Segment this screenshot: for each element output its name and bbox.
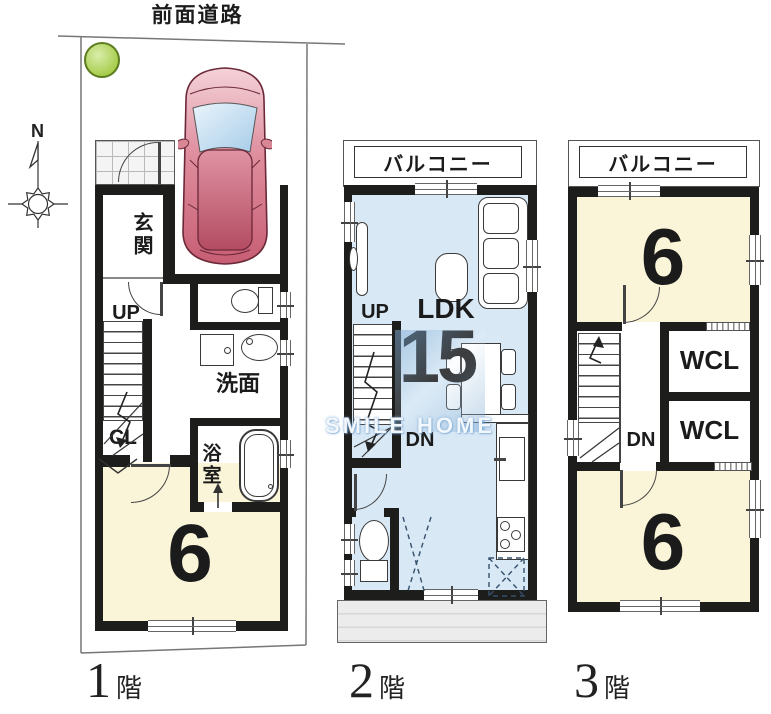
wall [163, 195, 175, 280]
toilet-tank-icon-2f [360, 560, 388, 582]
stair-edge-3f [619, 333, 621, 463]
hall-door-leaf [160, 282, 163, 316]
dn-label-3f: DN [622, 430, 660, 450]
wall [190, 280, 198, 330]
wall [95, 185, 175, 195]
closet-door-wcl-top [706, 322, 750, 331]
window [280, 440, 291, 468]
stairs-2f [353, 324, 393, 425]
sofa-cushion [483, 203, 519, 234]
window [280, 340, 291, 366]
sofa-cushion [483, 273, 519, 304]
wall [660, 331, 669, 466]
genkan-label: 玄関 [129, 206, 153, 264]
eave-canopy-2f [337, 600, 547, 643]
wall [344, 458, 401, 468]
window [526, 240, 538, 292]
window [598, 185, 660, 197]
senmen-label: 洗面 [210, 371, 266, 397]
wcl-bottom-label: WCL [669, 415, 750, 445]
tree-icon [84, 42, 120, 78]
window [749, 480, 761, 538]
closet-door-wcl-bottom [714, 462, 752, 471]
floor3-title: 3階 [574, 655, 630, 705]
balcony-label-box-2f: バルコニー [354, 146, 522, 178]
floor1-title: 1階 [86, 655, 142, 705]
cl-label: CL [102, 425, 144, 449]
stairs-3f [578, 333, 620, 423]
up-label-1f: UP [106, 303, 146, 323]
floor1-suffix: 階 [116, 676, 142, 702]
tv-icon [349, 247, 358, 271]
wall [170, 455, 198, 467]
floor1-number: 1 [86, 655, 111, 705]
balcony-label-box-3f: バルコニー [579, 146, 747, 178]
floor2-suffix: 階 [379, 676, 405, 702]
compass-n-label: N [31, 121, 44, 141]
room6-bottom-door-leaf [620, 470, 623, 508]
ldk-size-label: 15 [390, 322, 484, 392]
bath-label: 浴室 [199, 434, 221, 496]
up-label-2f: UP [356, 302, 394, 322]
bathtub-drain [268, 484, 273, 489]
floorplan-canvas: 前面道路 N [0, 0, 771, 714]
floor2-title: 2階 [349, 655, 405, 705]
sink-faucet-1f [246, 338, 253, 345]
front-door-leaf [158, 142, 161, 185]
dn-label-2f: DN [400, 430, 440, 450]
tatami-6-label-1f: 6 [150, 508, 230, 600]
compass-icon: N [6, 120, 70, 236]
sofa-cushion [483, 238, 519, 269]
wall [198, 418, 280, 426]
wall [390, 508, 399, 600]
window [424, 589, 478, 601]
counter-ledge [461, 414, 529, 423]
balcony-label-2f: バルコニー [383, 148, 493, 177]
window [148, 620, 236, 632]
wall [568, 187, 577, 612]
wall [568, 187, 759, 197]
floor3-suffix: 階 [604, 676, 630, 702]
toilet-bowl-icon-1f [231, 289, 259, 313]
wall [568, 322, 622, 331]
window [344, 202, 355, 242]
room6-door-leaf-1f [131, 464, 171, 467]
stove-burner [511, 530, 521, 540]
wall [143, 319, 152, 462]
stairs-1f [103, 321, 143, 421]
dining-chair [501, 384, 516, 410]
wall [95, 455, 130, 467]
front-road-label: 前面道路 [140, 2, 255, 28]
balcony-label-3f: バルコニー [608, 148, 718, 177]
window [620, 600, 700, 612]
stove-burner [500, 521, 510, 531]
car-icon [178, 64, 272, 268]
window [567, 420, 579, 456]
washing-machine-knob [224, 347, 231, 354]
wall [669, 392, 750, 401]
wcl-top-label: WCL [669, 345, 750, 375]
toilet-door-leaf-2f [354, 474, 357, 511]
window [344, 524, 355, 554]
window [344, 560, 355, 586]
wall [163, 274, 288, 284]
tatami-6-top-label: 6 [625, 215, 701, 299]
stove-burner [500, 539, 510, 549]
window [749, 235, 761, 285]
window [415, 183, 477, 195]
floor2-number: 2 [349, 655, 374, 705]
floor3-number: 3 [574, 655, 599, 705]
genkan-step-line [103, 277, 163, 279]
wall [280, 185, 288, 280]
toilet-icon-1f [258, 287, 273, 314]
dining-chair [501, 349, 516, 375]
tatami-6-bottom-label: 6 [625, 500, 701, 584]
wall [198, 322, 280, 330]
wall [568, 462, 620, 471]
window [280, 292, 291, 318]
wall [95, 185, 103, 631]
kitchen-faucet [494, 458, 506, 461]
toilet-bowl-icon-2f [359, 520, 389, 562]
